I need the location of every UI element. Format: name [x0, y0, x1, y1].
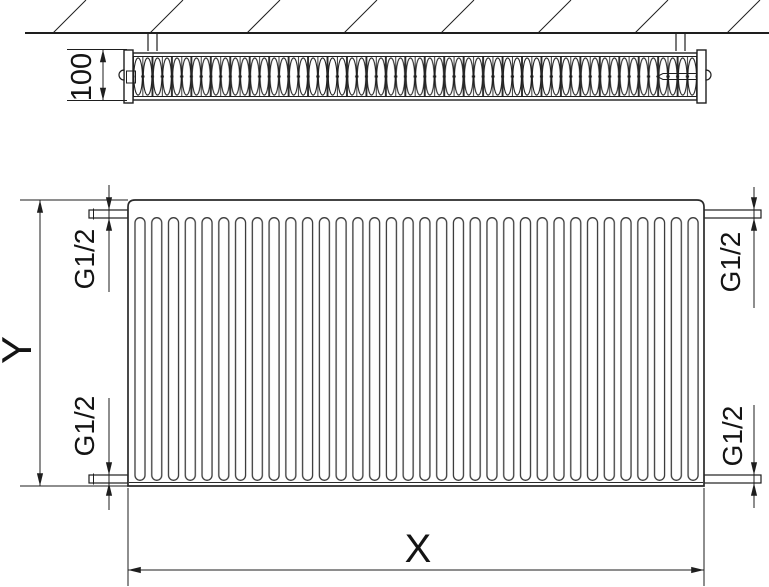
connection-label-bottom-right: G1/2 — [719, 401, 747, 471]
width-dimension-label: X — [378, 528, 458, 570]
connection-label-bottom-left: G1/2 — [71, 391, 99, 461]
connection-label-top-left: G1/2 — [71, 224, 99, 294]
height-dimension-label: Y — [0, 326, 39, 374]
depth-dimension-label: 100 — [67, 47, 97, 107]
connection-label-top-right: G1/2 — [717, 227, 745, 297]
panel-grooves — [132, 217, 702, 481]
mounting-bracket-left — [148, 33, 157, 51]
wall-hatch — [53, 0, 760, 33]
end-cap-right — [697, 50, 706, 103]
valve-plug-left — [119, 70, 124, 80]
convector-fins — [133, 57, 697, 96]
technical-drawing-canvas — [0, 0, 769, 587]
radiator-top-view — [119, 50, 711, 103]
connection-stub-bottom-right — [704, 475, 761, 483]
radiator-dimension-diagram: 100 Y X G1/2 G1/2 G1/2 G1/2 — [0, 0, 769, 587]
end-cap-left — [124, 50, 133, 103]
mounting-bracket-right — [676, 33, 685, 51]
connection-stub-top-right — [704, 210, 761, 218]
valve-plug-right — [706, 70, 711, 80]
radiator-front-view — [89, 200, 761, 486]
